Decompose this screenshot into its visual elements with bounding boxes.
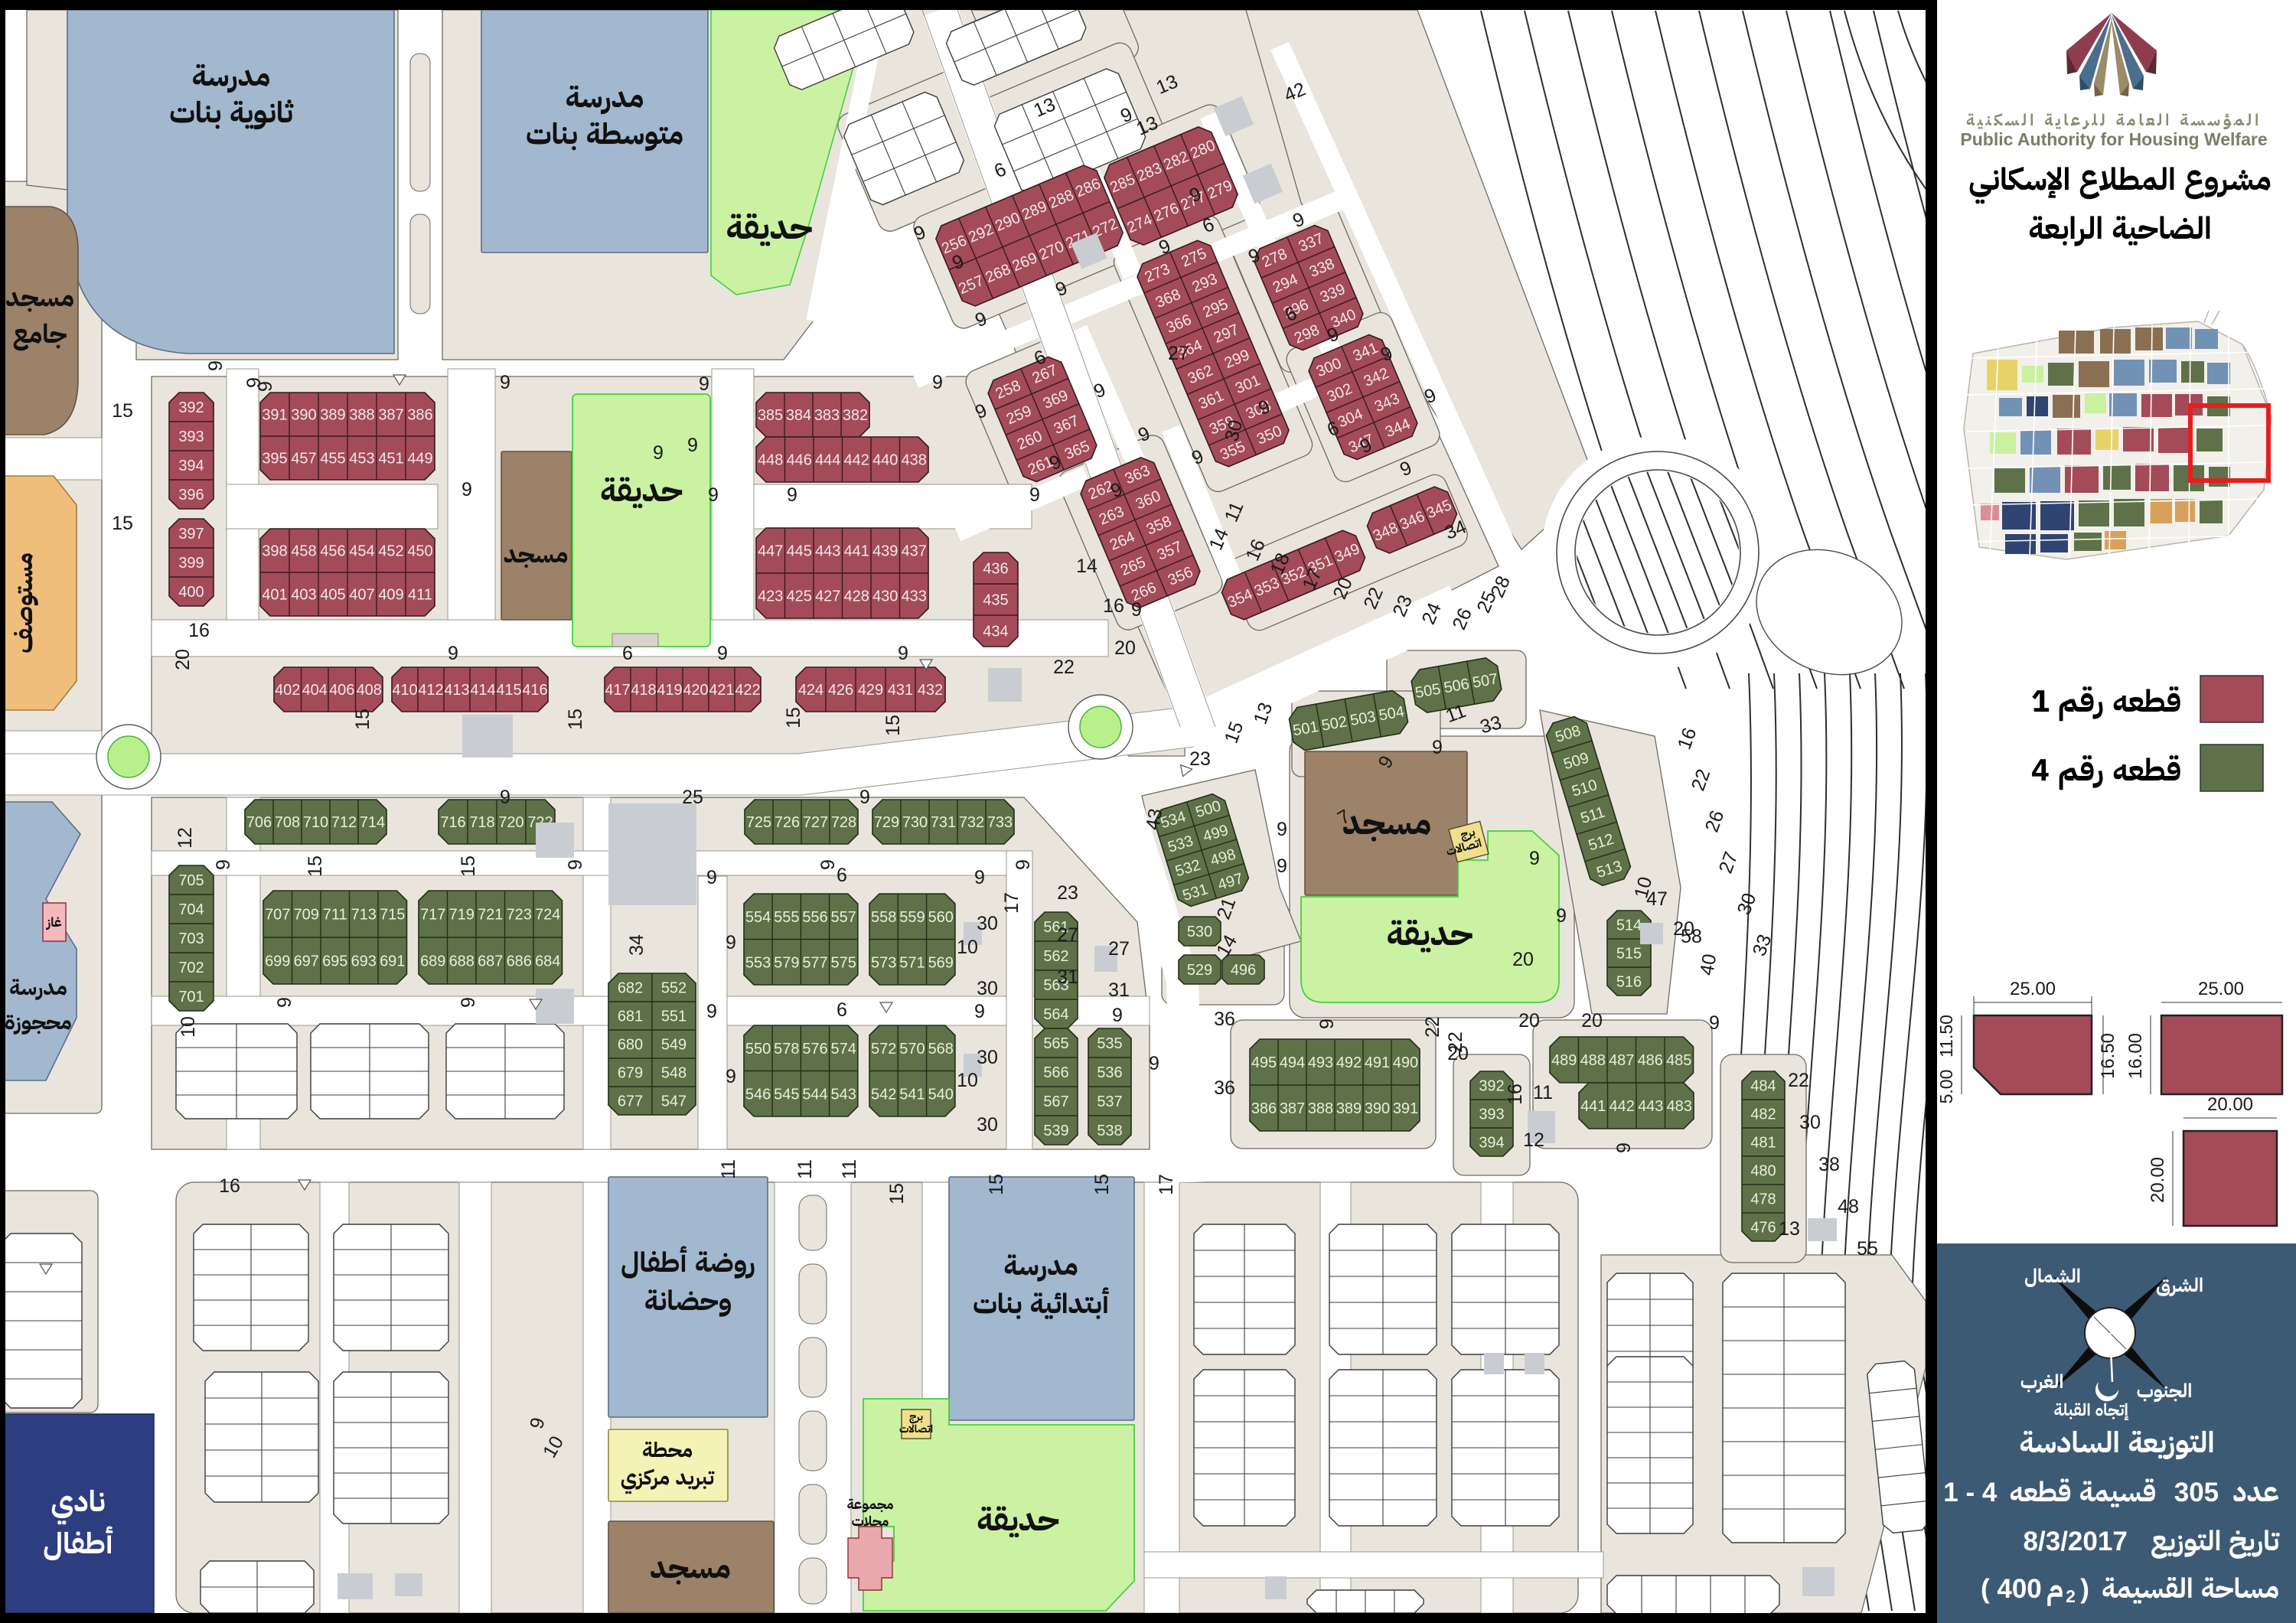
svg-text:11.50: 11.50 (1936, 1015, 1956, 1058)
svg-text:9: 9 (717, 643, 728, 664)
svg-text:680: 680 (618, 1037, 643, 1054)
svg-text:9: 9 (213, 859, 234, 870)
svg-text:9: 9 (1277, 855, 1287, 877)
svg-text:9: 9 (1029, 484, 1040, 506)
svg-text:693: 693 (351, 953, 377, 970)
svg-text:432: 432 (918, 682, 943, 699)
svg-text:514: 514 (1616, 917, 1642, 934)
svg-text:417: 417 (605, 682, 630, 699)
svg-text:426: 426 (828, 682, 853, 699)
svg-text:543: 543 (831, 1086, 856, 1103)
svg-text:386: 386 (1251, 1100, 1277, 1117)
svg-text:708: 708 (275, 814, 300, 831)
svg-text:393: 393 (178, 429, 204, 445)
svg-text:31: 31 (1057, 966, 1078, 988)
svg-text:529: 529 (1187, 962, 1212, 979)
svg-text:418: 418 (631, 682, 656, 699)
svg-text:552: 552 (661, 980, 687, 997)
svg-text:714: 714 (360, 814, 385, 831)
svg-text:548: 548 (661, 1065, 687, 1082)
svg-text:428: 428 (844, 588, 869, 605)
svg-text:20: 20 (172, 649, 194, 670)
svg-text:15: 15 (783, 707, 804, 728)
svg-text:9: 9 (687, 435, 698, 456)
svg-text:6: 6 (837, 865, 847, 886)
svg-text:5.00: 5.00 (1936, 1070, 1956, 1104)
svg-text:701: 701 (178, 989, 204, 1005)
svg-text:709: 709 (294, 907, 319, 924)
svg-text:9: 9 (500, 372, 510, 393)
svg-text:389: 389 (320, 407, 345, 424)
svg-text:568: 568 (928, 1041, 954, 1058)
svg-text:25.00: 25.00 (2010, 979, 2056, 999)
svg-text:447: 447 (758, 543, 783, 560)
svg-text:55: 55 (1857, 1238, 1878, 1260)
svg-text:416: 416 (522, 682, 547, 699)
svg-text:22: 22 (1053, 657, 1075, 678)
svg-text:579: 579 (774, 954, 799, 971)
svg-text:712: 712 (331, 814, 357, 831)
svg-text:530: 530 (1187, 924, 1212, 940)
svg-text:15: 15 (112, 513, 133, 534)
svg-text:11: 11 (1533, 1082, 1553, 1103)
svg-text:539: 539 (1043, 1123, 1068, 1139)
svg-text:719: 719 (449, 907, 475, 924)
svg-text:481: 481 (1750, 1135, 1776, 1152)
svg-text:454: 454 (349, 543, 374, 560)
svg-text:536: 536 (1097, 1064, 1122, 1081)
svg-text:9: 9 (787, 484, 797, 506)
svg-text:705: 705 (178, 872, 204, 889)
svg-text:9: 9 (500, 787, 510, 808)
svg-text:545: 545 (774, 1086, 799, 1103)
svg-text:22: 22 (1422, 1016, 1443, 1038)
svg-text:16.00: 16.00 (2125, 1033, 2146, 1079)
svg-text:9: 9 (205, 360, 227, 371)
svg-text:567: 567 (1043, 1093, 1068, 1110)
svg-text:516: 516 (1616, 974, 1642, 991)
svg-text:443: 443 (1638, 1098, 1663, 1115)
svg-text:437: 437 (902, 543, 927, 560)
svg-text:9: 9 (461, 479, 472, 500)
svg-text:695: 695 (322, 953, 347, 970)
svg-text:16: 16 (1505, 1084, 1526, 1105)
svg-text:732: 732 (959, 814, 984, 831)
svg-text:540: 540 (928, 1086, 954, 1103)
svg-text:30: 30 (977, 1047, 998, 1068)
svg-text:9: 9 (448, 643, 458, 664)
svg-text:388: 388 (349, 407, 374, 424)
svg-text:27: 27 (1168, 343, 1189, 364)
svg-text:34: 34 (626, 934, 647, 956)
svg-text:27: 27 (1108, 938, 1130, 960)
svg-text:10: 10 (957, 1070, 978, 1091)
svg-text:9: 9 (458, 997, 479, 1008)
svg-text:402: 402 (275, 682, 300, 699)
svg-text:9: 9 (706, 867, 717, 888)
svg-text:452: 452 (378, 543, 403, 560)
svg-text:392: 392 (1479, 1078, 1504, 1095)
svg-text:11: 11 (718, 1159, 739, 1179)
svg-text:23: 23 (1189, 748, 1211, 770)
svg-text:702: 702 (178, 960, 204, 976)
svg-text:9: 9 (1112, 1005, 1123, 1026)
svg-text:14: 14 (1076, 556, 1097, 577)
svg-text:9: 9 (1709, 1012, 1720, 1034)
svg-text:400: 400 (178, 584, 204, 601)
svg-text:9: 9 (932, 372, 943, 393)
svg-text:686: 686 (507, 953, 532, 970)
svg-text:394: 394 (178, 458, 204, 474)
svg-text:20: 20 (1512, 949, 1534, 970)
svg-text:483: 483 (1667, 1098, 1692, 1115)
svg-text:433: 433 (902, 588, 927, 605)
svg-text:550: 550 (745, 1041, 771, 1058)
svg-text:575: 575 (831, 954, 856, 971)
svg-text:703: 703 (178, 930, 204, 947)
svg-text:486: 486 (1638, 1052, 1663, 1069)
svg-text:9: 9 (1013, 859, 1034, 870)
svg-text:547: 547 (661, 1093, 687, 1110)
svg-text:542: 542 (871, 1086, 896, 1103)
svg-text:458: 458 (291, 543, 316, 560)
svg-text:31: 31 (1108, 979, 1130, 1001)
svg-text:383: 383 (814, 407, 840, 424)
svg-text:429: 429 (858, 682, 883, 699)
svg-text:495: 495 (1251, 1054, 1277, 1071)
svg-text:478: 478 (1750, 1191, 1776, 1208)
svg-text:490: 490 (1393, 1054, 1418, 1071)
svg-text:493: 493 (1308, 1054, 1333, 1071)
svg-text:405: 405 (320, 587, 345, 604)
svg-text:30: 30 (977, 913, 998, 934)
svg-text:391: 391 (262, 407, 287, 424)
svg-text:30: 30 (1799, 1112, 1821, 1133)
svg-text:706: 706 (246, 814, 272, 831)
svg-text:9: 9 (1316, 1018, 1338, 1029)
svg-text:724: 724 (535, 907, 560, 924)
svg-text:538: 538 (1097, 1123, 1122, 1139)
svg-text:730: 730 (902, 814, 928, 831)
svg-text:9: 9 (1277, 819, 1287, 840)
svg-text:489: 489 (1551, 1052, 1577, 1069)
svg-text:485: 485 (1666, 1052, 1691, 1069)
svg-text:407: 407 (349, 587, 374, 604)
svg-text:9: 9 (1149, 1053, 1159, 1074)
svg-text:9: 9 (708, 484, 719, 506)
svg-text:729: 729 (874, 814, 899, 831)
svg-text:15: 15 (882, 715, 904, 736)
svg-text:444: 444 (815, 452, 840, 469)
svg-text:36: 36 (1214, 1009, 1235, 1030)
svg-text:16: 16 (188, 620, 210, 641)
svg-text:443: 443 (815, 543, 840, 560)
svg-text:456: 456 (320, 543, 345, 560)
svg-text:16: 16 (1103, 595, 1124, 617)
svg-text:406: 406 (329, 682, 354, 699)
svg-text:43: 43 (1142, 807, 1166, 831)
svg-text:578: 578 (774, 1041, 799, 1058)
svg-text:20: 20 (1518, 1010, 1540, 1031)
svg-text:386: 386 (407, 407, 432, 424)
svg-text:17: 17 (1156, 1174, 1177, 1195)
svg-text:555: 555 (774, 909, 799, 926)
svg-text:442: 442 (844, 452, 869, 469)
svg-text:12: 12 (174, 827, 196, 849)
svg-text:484: 484 (1750, 1078, 1776, 1095)
svg-text:711: 711 (323, 907, 347, 924)
svg-text:430: 430 (872, 588, 898, 605)
svg-text:389: 389 (1336, 1100, 1362, 1117)
svg-text:535: 535 (1097, 1035, 1122, 1052)
svg-text:721: 721 (478, 907, 503, 924)
svg-text:434: 434 (983, 624, 1008, 640)
svg-text:20.00: 20.00 (2207, 1094, 2253, 1115)
svg-text:707: 707 (265, 907, 290, 924)
svg-text:728: 728 (831, 814, 856, 831)
svg-text:384: 384 (786, 407, 811, 424)
svg-text:436: 436 (983, 561, 1008, 578)
svg-text:( 400: ( 400 (1981, 1574, 2042, 1604)
svg-text:577: 577 (802, 954, 827, 971)
svg-text:733: 733 (987, 814, 1013, 831)
svg-text:20: 20 (1114, 637, 1136, 659)
svg-text:569: 569 (928, 954, 954, 971)
svg-text:723: 723 (507, 907, 532, 924)
svg-text:9: 9 (274, 997, 295, 1008)
svg-text:727: 727 (803, 814, 828, 831)
svg-text:571: 571 (899, 954, 925, 971)
svg-text:423: 423 (758, 588, 783, 605)
svg-text:554: 554 (745, 909, 771, 926)
svg-text:6: 6 (622, 643, 633, 664)
svg-text:699: 699 (265, 953, 290, 970)
svg-text:9: 9 (817, 859, 839, 870)
svg-text:450: 450 (407, 543, 432, 560)
svg-text:48: 48 (1838, 1196, 1859, 1217)
svg-text:2: 2 (2066, 1586, 2076, 1606)
svg-text:691: 691 (380, 953, 405, 970)
svg-text:30: 30 (977, 1114, 998, 1136)
svg-text:682: 682 (618, 980, 643, 997)
svg-text:441: 441 (1580, 1098, 1606, 1115)
svg-text:482: 482 (1750, 1106, 1776, 1123)
svg-text:689: 689 (420, 953, 445, 970)
svg-text:562: 562 (1043, 948, 1068, 965)
svg-text:305: 305 (2174, 1478, 2219, 1507)
svg-text:15: 15 (565, 709, 586, 730)
svg-text:439: 439 (872, 543, 898, 560)
svg-text:15: 15 (986, 1174, 1007, 1195)
svg-text:22: 22 (1788, 1070, 1809, 1091)
svg-text:414: 414 (470, 682, 495, 699)
svg-text:718: 718 (469, 814, 494, 831)
svg-text:9: 9 (1556, 905, 1567, 927)
svg-text:572: 572 (871, 1041, 896, 1058)
svg-text:15: 15 (112, 400, 133, 422)
svg-text:496: 496 (1231, 962, 1256, 979)
svg-text:408: 408 (357, 682, 382, 699)
svg-text:492: 492 (1336, 1054, 1362, 1071)
svg-text:445: 445 (787, 543, 812, 560)
svg-text:576: 576 (802, 1041, 827, 1058)
svg-text:679: 679 (618, 1065, 643, 1082)
svg-text:553: 553 (745, 954, 771, 971)
svg-text:412: 412 (418, 682, 443, 699)
svg-text:38: 38 (1818, 1154, 1840, 1175)
svg-text:438: 438 (902, 452, 927, 469)
svg-text:494: 494 (1280, 1054, 1305, 1071)
svg-text:677: 677 (618, 1093, 643, 1110)
svg-text:10: 10 (957, 937, 978, 958)
svg-text:431: 431 (888, 682, 913, 699)
svg-text:6: 6 (837, 999, 847, 1021)
svg-text:391: 391 (1393, 1100, 1418, 1117)
svg-text:544: 544 (802, 1086, 827, 1103)
svg-text:40: 40 (1696, 952, 1720, 976)
svg-text:25.00: 25.00 (2198, 979, 2244, 999)
svg-text:15: 15 (458, 855, 479, 877)
svg-text:442: 442 (1609, 1098, 1635, 1115)
svg-text:390: 390 (1365, 1100, 1390, 1117)
svg-text:20.00: 20.00 (2148, 1157, 2168, 1203)
svg-text:15: 15 (352, 709, 373, 730)
svg-text:688: 688 (449, 953, 475, 970)
svg-text:574: 574 (831, 1041, 856, 1058)
svg-text:11: 11 (839, 1159, 860, 1179)
svg-text:697: 697 (294, 953, 319, 970)
svg-text:30: 30 (977, 978, 998, 999)
svg-text:8/3/2017: 8/3/2017 (2024, 1527, 2128, 1556)
svg-text:9: 9 (859, 787, 870, 808)
svg-text:22: 22 (1445, 1031, 1466, 1053)
svg-text:717: 717 (420, 907, 445, 924)
svg-text:491: 491 (1365, 1054, 1390, 1071)
svg-text:15: 15 (305, 855, 326, 877)
svg-text:9: 9 (1529, 848, 1540, 869)
svg-text:419: 419 (657, 682, 682, 699)
svg-text:15: 15 (886, 1183, 908, 1204)
svg-text:446: 446 (787, 452, 812, 469)
svg-text:725: 725 (746, 814, 771, 831)
svg-text:404: 404 (302, 682, 328, 699)
svg-text:401: 401 (262, 587, 287, 604)
svg-text:549: 549 (661, 1037, 687, 1054)
svg-text:453: 453 (349, 451, 374, 468)
svg-text:388: 388 (1308, 1100, 1333, 1117)
svg-text:449: 449 (407, 451, 432, 468)
svg-text:9: 9 (255, 381, 276, 392)
svg-text:713: 713 (351, 907, 377, 924)
svg-text:395: 395 (262, 451, 287, 468)
svg-text:11: 11 (794, 1159, 816, 1179)
svg-text:424: 424 (798, 682, 823, 699)
svg-text:440: 440 (872, 452, 898, 469)
svg-text:480: 480 (1750, 1163, 1776, 1180)
svg-text:427: 427 (815, 588, 840, 605)
svg-text:1 - 4: 1 - 4 (1943, 1478, 1998, 1507)
svg-text:710: 710 (303, 814, 328, 831)
svg-text:560: 560 (928, 909, 954, 926)
svg-text:684: 684 (535, 953, 560, 970)
svg-text:399: 399 (178, 555, 204, 572)
svg-text:559: 559 (899, 909, 925, 926)
svg-text:565: 565 (1043, 1035, 1068, 1052)
svg-text:488: 488 (1580, 1052, 1606, 1069)
svg-text:425: 425 (787, 588, 812, 605)
svg-text:409: 409 (378, 587, 403, 604)
svg-text:403: 403 (291, 587, 316, 604)
svg-text:10: 10 (178, 1016, 199, 1038)
svg-text:435: 435 (983, 592, 1008, 609)
svg-text:47: 47 (1646, 888, 1668, 910)
svg-text:9: 9 (726, 932, 736, 953)
svg-text:415: 415 (496, 682, 521, 699)
svg-text:687: 687 (478, 953, 503, 970)
svg-text:9: 9 (898, 643, 908, 664)
svg-text:387: 387 (378, 407, 403, 424)
svg-text:36: 36 (1214, 1077, 1235, 1099)
svg-text:17: 17 (1001, 892, 1022, 914)
svg-text:556: 556 (802, 909, 827, 926)
svg-text:557: 557 (831, 909, 856, 926)
svg-text:393: 393 (1479, 1106, 1504, 1123)
svg-text:716: 716 (440, 814, 465, 831)
svg-text:451: 451 (378, 451, 403, 468)
svg-text:455: 455 (320, 451, 345, 468)
svg-text:9: 9 (699, 373, 709, 395)
svg-text:Public Authority for Housing W: Public Authority for Housing Welfare (1960, 129, 2267, 149)
svg-text:396: 396 (178, 487, 204, 504)
svg-text:570: 570 (899, 1041, 925, 1058)
svg-text:726: 726 (775, 814, 800, 831)
svg-text:9: 9 (1432, 737, 1443, 758)
svg-text:20: 20 (1581, 1010, 1603, 1031)
svg-text:441: 441 (844, 543, 869, 560)
svg-text:487: 487 (1609, 1052, 1634, 1069)
svg-text:715: 715 (380, 907, 405, 924)
svg-text:398: 398 (262, 543, 287, 560)
svg-text:558: 558 (871, 909, 896, 926)
svg-text:546: 546 (745, 1086, 771, 1103)
svg-text:397: 397 (178, 526, 204, 543)
svg-text:27: 27 (1057, 924, 1078, 946)
svg-text:573: 573 (871, 954, 896, 971)
svg-text:390: 390 (291, 407, 316, 424)
svg-text:731: 731 (931, 814, 956, 831)
svg-text:12: 12 (1523, 1129, 1544, 1151)
svg-text:16: 16 (219, 1175, 240, 1197)
svg-text:457: 457 (291, 451, 316, 468)
svg-text:704: 704 (178, 901, 204, 918)
svg-text:382: 382 (843, 407, 868, 424)
svg-text:410: 410 (392, 682, 417, 699)
svg-text:9: 9 (653, 442, 664, 464)
svg-text:476: 476 (1750, 1220, 1776, 1237)
svg-text:413: 413 (444, 682, 469, 699)
svg-text:411: 411 (408, 587, 432, 604)
svg-text:9: 9 (974, 1001, 985, 1022)
svg-text:16.50: 16.50 (2098, 1033, 2118, 1079)
svg-text:9: 9 (565, 859, 586, 870)
svg-text:515: 515 (1616, 946, 1642, 963)
svg-text:421: 421 (709, 682, 734, 699)
svg-text:25: 25 (682, 787, 703, 808)
svg-text:58: 58 (1681, 926, 1702, 947)
svg-text:541: 541 (899, 1086, 925, 1103)
svg-text:9: 9 (726, 1066, 736, 1087)
svg-text:566: 566 (1043, 1064, 1068, 1081)
